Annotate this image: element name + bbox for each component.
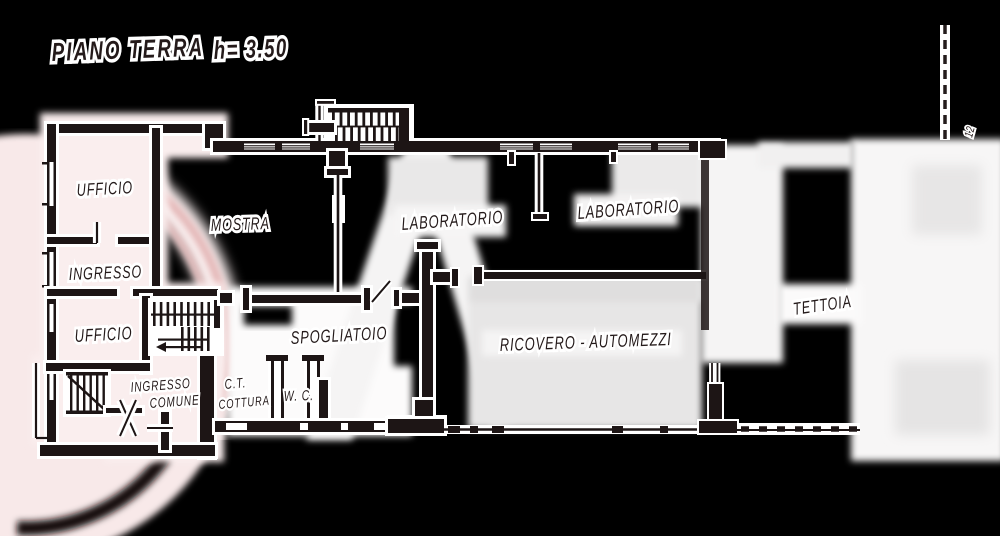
- svg-text:PIANO TERRA: PIANO TERRA: [51, 32, 205, 67]
- svg-text:MOSTRA: MOSTRA: [210, 214, 270, 236]
- svg-text:UFFICIO: UFFICIO: [74, 324, 133, 347]
- svg-text:UFFICIO: UFFICIO: [76, 178, 133, 200]
- svg-text:W. C.: W. C.: [284, 387, 315, 404]
- svg-text:h= 3.50: h= 3.50: [213, 32, 288, 64]
- svg-text:INGRESSO: INGRESSO: [68, 263, 142, 285]
- svg-text:C.T.: C.T.: [224, 375, 247, 393]
